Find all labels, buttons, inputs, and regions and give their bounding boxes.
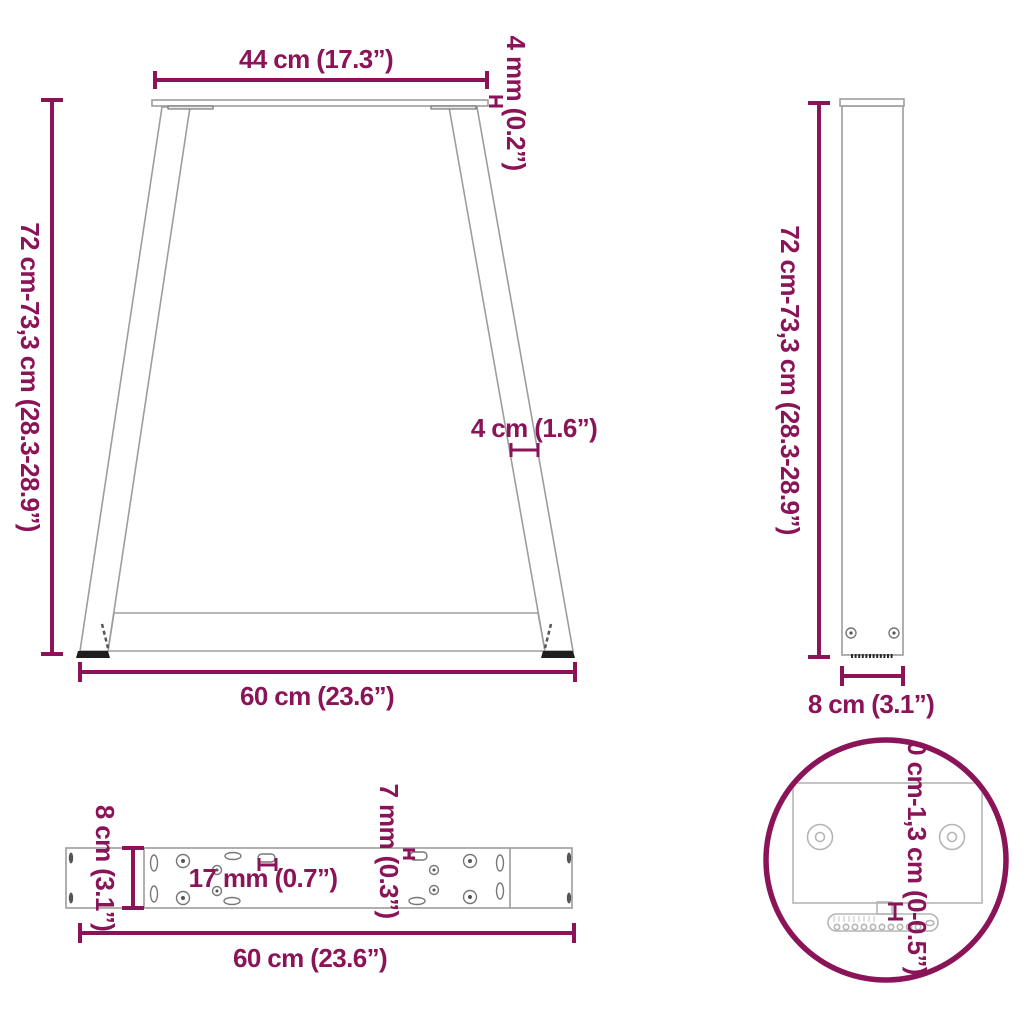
plate-depth-label: 8 cm (3.1”) — [92, 805, 118, 931]
plate-length-label: 60 cm (23.6”) — [233, 945, 387, 971]
plate-slot-length-label: 17 mm (0.7”) — [189, 865, 338, 891]
front-top-width-label: 44 cm (17.3”) — [239, 46, 393, 72]
front-plate-thickness-label: 4 mm (0.2”) — [503, 35, 529, 170]
product-dimensions-diagram: 44 cm (17.3”) 4 mm (0.2”) 72 cm-73,3 cm … — [0, 0, 1024, 1024]
side-depth-label: 8 cm (3.1”) — [808, 691, 934, 717]
front-bottom-width-label: 60 cm (23.6”) — [240, 683, 394, 709]
front-view-drawing — [76, 100, 575, 658]
foot-detail-drawing — [766, 740, 1006, 980]
detail-adjustment-label: 0 cm-1,3 cm (0-0.5”) — [904, 741, 930, 975]
front-leg-width-label: 4 cm (1.6”) — [471, 415, 597, 441]
side-view-drawing — [840, 99, 904, 656]
front-height-label: 72 cm-73,3 cm (28.3-28.9”) — [17, 222, 43, 532]
plate-slot-width-label: 7 mm (0.3”) — [376, 783, 402, 918]
side-height-label: 72 cm-73,3 cm (28.3-28.9”) — [777, 225, 803, 535]
